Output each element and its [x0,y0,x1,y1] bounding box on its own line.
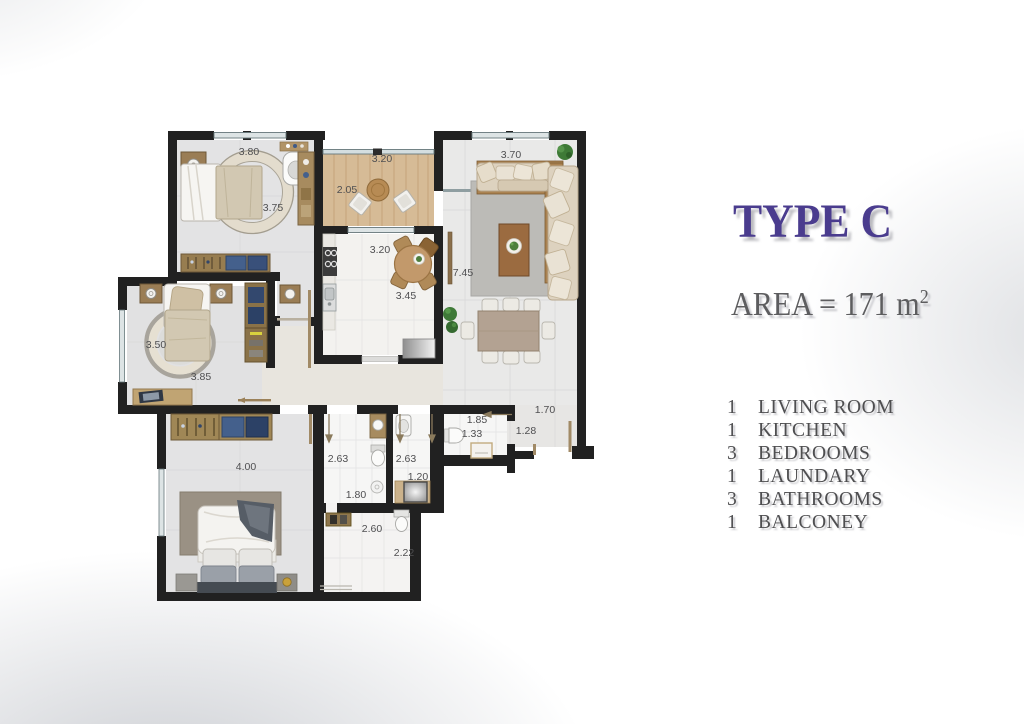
svg-text:3.50: 3.50 [146,339,167,351]
svg-text:2.60: 2.60 [362,523,383,535]
svg-text:7.45: 7.45 [453,267,474,279]
svg-text:2.05: 2.05 [337,184,358,196]
svg-text:1.28: 1.28 [516,425,537,437]
svg-text:3.20: 3.20 [370,244,391,256]
svg-text:1.85: 1.85 [467,414,488,426]
svg-text:3.70: 3.70 [501,149,522,161]
svg-text:3.80: 3.80 [239,146,260,158]
svg-text:2.22: 2.22 [394,547,415,559]
svg-text:1.33: 1.33 [462,428,483,440]
svg-text:3.20: 3.20 [372,153,393,165]
svg-text:4.00: 4.00 [236,461,257,473]
svg-text:3.85: 3.85 [191,371,212,383]
svg-text:1.20: 1.20 [408,471,429,483]
svg-text:3.75: 3.75 [263,202,284,214]
svg-text:2.63: 2.63 [328,453,349,465]
svg-text:1.70: 1.70 [535,404,556,416]
svg-text:2.63: 2.63 [396,453,417,465]
svg-text:3.45: 3.45 [396,290,417,302]
svg-text:1.80: 1.80 [346,489,367,501]
